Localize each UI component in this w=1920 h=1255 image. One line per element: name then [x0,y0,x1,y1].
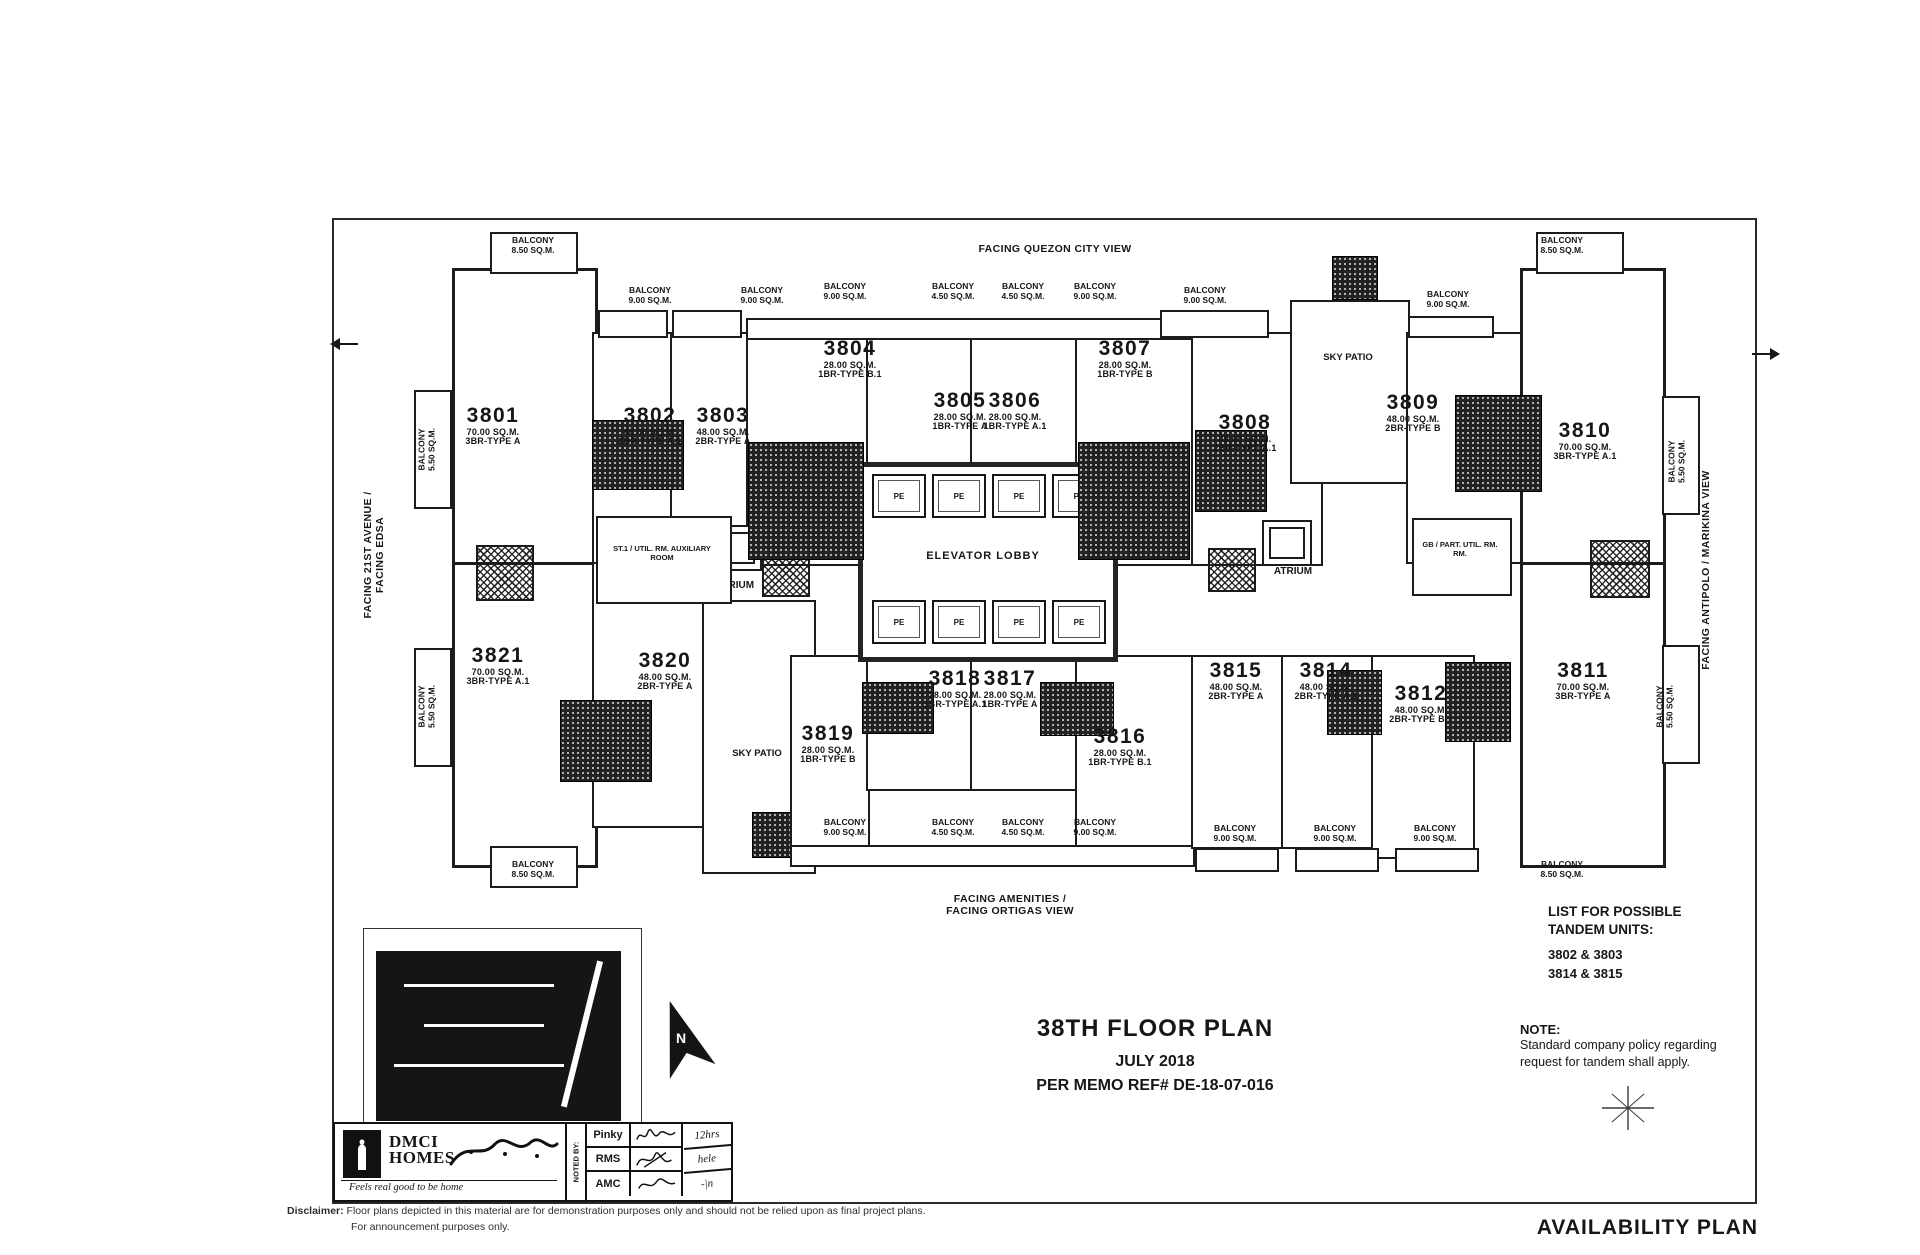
facing-label-right: FACING ANTIPOLO / MARIKINA VIEW [1700,405,1712,735]
elevator-car: PE [932,474,986,518]
approver-signature [631,1124,683,1148]
facing-bottom-line2: FACING ORTIGAS VIEW [946,905,1074,917]
plan-title-block: 38TH FLOOR PLAN JULY 2018 PER MEMO REF# … [955,1015,1355,1095]
elevator-car: PE [992,600,1046,644]
unit-3812: 381248.00 SQ.M.2BR-TYPE B.1 [1371,683,1471,725]
note-line2: request for tandem shall apply. [1520,1055,1690,1069]
plan-date: JULY 2018 [955,1053,1355,1071]
balcony-label: BALCONY4.50 SQ.M. [913,282,993,301]
unit-type: 1BR-TYPE B.1 [800,370,900,380]
survey-cross-icon [1598,1082,1658,1134]
approver-signature [631,1148,683,1172]
balcony-label: BALCONY8.50 SQ.M. [1522,860,1602,879]
unit-type: 2BR-TYPE A [1186,692,1286,702]
tandem-pair: 3802 & 3803 [1548,947,1622,962]
unit-3801: 380170.00 SQ.M.3BR-TYPE A [443,405,543,447]
note-line1: Standard company policy regarding [1520,1038,1717,1052]
balcony-word: BALCONY [416,429,426,471]
fire-exit-stair-right [1590,540,1650,598]
unit-3810: 381070.00 SQ.M.3BR-TYPE A.1 [1535,420,1635,462]
balcony-structure [1160,310,1269,338]
unit-type: 1BR-TYPE B [1075,370,1175,380]
balcony-label: BALCONY9.00 SQ.M. [805,282,885,301]
unit-3808: 380848.00 SQ.M.2BR-TYPE A.1 [1195,412,1295,454]
sky-patio-label-top: SKY PATIO [1292,352,1404,363]
unit-number: 3812 [1371,683,1471,706]
dmci-logo-block: DMCI HOMES Feels real good to be home [333,1122,567,1202]
balcony-structure [672,310,742,338]
balcony-label: BALCONY9.00 SQ.M. [722,286,802,305]
note-heading: NOTE: [1520,1022,1760,1037]
balcony-word: BALCONY [1427,289,1469,299]
balcony-area: 9.00 SQ.M. [741,295,784,305]
unit-3803: 380348.00 SQ.M.2BR-TYPE A [673,405,773,447]
balcony-label: BALCONY5.50 SQ.M. [1667,422,1686,502]
unit-3807: 380728.00 SQ.M.1BR-TYPE B [1075,338,1175,380]
balcony-label: BALCONY8.50 SQ.M. [1522,236,1602,255]
balcony-word: BALCONY [629,285,671,295]
unit-type: 2BR-TYPE A [673,437,773,447]
facing-left-line2: FACING EDSA [374,517,386,593]
approver-name: AMC [587,1172,631,1196]
north-arrow-icon: N [648,1000,720,1090]
unit-number: 3819 [778,723,878,746]
unit-3821: 382170.00 SQ.M.3BR-TYPE A.1 [448,645,548,687]
balcony-label: BALCONY5.50 SQ.M. [417,410,436,490]
balcony-structure [1195,848,1279,872]
unit-number: 3807 [1075,338,1175,361]
balcony-area: 9.00 SQ.M. [1074,291,1117,301]
balcony-structure [1395,848,1479,872]
balcony-word: BALCONY [741,285,783,295]
elevator-car: PE [872,600,926,644]
balcony-area: 4.50 SQ.M. [1002,291,1045,301]
unit-3820: 382048.00 SQ.M.2BR-TYPE A [615,650,715,692]
tandem-heading-line2: TANDEM UNITS: [1548,922,1654,937]
balcony-structure [1408,316,1494,338]
elevator-car: PE [992,474,1046,518]
matchline-arrow-left-icon [330,338,358,350]
logo-divider [341,1180,557,1181]
unit-3804: 380428.00 SQ.M.1BR-TYPE B.1 [800,338,900,380]
balcony-area: 4.50 SQ.M. [1002,827,1045,837]
unit-3811: 381170.00 SQ.M.3BR-TYPE A [1533,660,1633,702]
unit-number: 3810 [1535,420,1635,443]
balcony-word: BALCONY [824,817,866,827]
balcony-label: BALCONY9.00 SQ.M. [1165,286,1245,305]
balcony-area: 5.50 SQ.M. [1676,440,1686,483]
balcony-area: 8.50 SQ.M. [512,869,555,879]
approver-signature [631,1172,683,1196]
availability-plan-label: AVAILABILITY PLAN [1518,1216,1758,1240]
dmci-logo-icon [343,1130,381,1178]
unit-3806: 380628.00 SQ.M.1BR-TYPE A.1 [965,390,1065,432]
unit-number: 3820 [615,650,715,673]
matchline-arrow-right-icon [1752,348,1780,360]
unit-3816: 381628.00 SQ.M.1BR-TYPE B.1 [1070,726,1170,768]
key-plan-detail [424,1024,544,1027]
unit-type: 3BR-TYPE A.1 [448,677,548,687]
balcony-label: BALCONY4.50 SQ.M. [983,818,1063,837]
disclaimer-line1: Floor plans depicted in this material ar… [347,1205,926,1217]
unit-type: 2BR-TYPE B [1363,424,1463,434]
balcony-structure [790,845,1195,867]
key-plan-detail [404,984,554,987]
unit-type: 2BR-TYPE B.1 [1371,715,1471,725]
atrium-label-right: ATRIUM [1258,566,1328,578]
balcony-word: BALCONY [932,281,974,291]
noted-by-header: NOTED BY: [567,1124,587,1200]
elevator-car: PE [872,474,926,518]
key-plan-thumbnail [363,928,642,1138]
balcony-area: 5.50 SQ.M. [426,685,436,728]
disclaimer: Disclaimer: Floor plans depicted in this… [287,1204,1117,1236]
balcony-word: BALCONY [1314,823,1356,833]
balcony-area: 9.00 SQ.M. [1427,299,1470,309]
balcony-word: BALCONY [1414,823,1456,833]
elevator-car-label: PE [894,492,905,501]
sky-patio-label-bottom: SKY PATIO [706,748,808,759]
brand-tagline: Feels real good to be home [349,1182,463,1193]
balcony-structure [598,310,668,338]
elevator-car: PE [932,600,986,644]
fixtures-cluster [748,442,864,560]
balcony-area: 9.00 SQ.M. [1184,295,1227,305]
balcony-label: BALCONY9.00 SQ.M. [610,286,690,305]
balcony-structure [1295,848,1379,872]
balcony-area: 4.50 SQ.M. [932,291,975,301]
north-letter: N [676,1030,686,1046]
unit-number: 3821 [448,645,548,668]
unit-3809: 380948.00 SQ.M.2BR-TYPE B [1363,392,1463,434]
balcony-area: 5.50 SQ.M. [1664,685,1674,728]
facing-label-left: FACING 21ST AVENUE / FACING EDSA [362,425,386,685]
elevator-car-label: PE [1014,618,1025,627]
elevator-car-label: PE [954,618,965,627]
approver-name: Pinky [587,1124,631,1148]
balcony-word: BALCONY [416,686,426,728]
balcony-area: 5.50 SQ.M. [426,428,436,471]
disclaimer-label: Disclaimer: [287,1205,344,1217]
atrium-skylight-right [1262,520,1312,566]
facing-label-bottom: FACING AMENITIES / FACING ORTIGAS VIEW [910,893,1110,918]
unit-number: 3804 [800,338,900,361]
elevator-car-label: PE [894,618,905,627]
tandem-units-list: LIST FOR POSSIBLETANDEM UNITS: 3802 & 38… [1548,903,1768,984]
unit-number: 3809 [1363,392,1463,415]
balcony-label: BALCONY9.00 SQ.M. [1408,290,1488,309]
balcony-label: BALCONY9.00 SQ.M. [1195,824,1275,843]
facing-label-top: FACING QUEZON CITY VIEW [945,243,1165,255]
balcony-label: BALCONY8.50 SQ.M. [493,860,573,879]
balcony-word: BALCONY [1541,235,1583,245]
balcony-label: BALCONY9.00 SQ.M. [1055,282,1135,301]
balcony-word: BALCONY [932,817,974,827]
balcony-area: 4.50 SQ.M. [932,827,975,837]
balcony-label: BALCONY9.00 SQ.M. [1295,824,1375,843]
balcony-label: BALCONY8.50 SQ.M. [493,236,573,255]
noted-by-grid: Pinky 12hrs RMS hele AMC -|n [587,1124,731,1200]
facing-left-line1: FACING 21ST AVENUE / [362,491,374,618]
unit-type: 2BR-TYPE A.1 [1276,692,1376,702]
balcony-label: BALCONY4.50 SQ.M. [913,818,993,837]
unit-3814: 381448.00 SQ.M.2BR-TYPE A.1 [1276,660,1376,702]
unit-number: 3815 [1186,660,1286,683]
unit-type: 2BR-TYPE A [615,682,715,692]
balcony-word: BALCONY [1654,686,1664,728]
unit-type: 3BR-TYPE A [1533,692,1633,702]
noted-by-label: NOTED BY: [572,1142,581,1183]
shaft-hatch [1208,548,1256,592]
unit-number: 3801 [443,405,543,428]
plan-title: 38TH FLOOR PLAN [955,1015,1355,1043]
elevator-car: PE [1052,600,1106,644]
balcony-area: 8.50 SQ.M. [1541,869,1584,879]
elevator-car-label: PE [1074,618,1085,627]
balcony-label: BALCONY9.00 SQ.M. [1395,824,1475,843]
elevator-car-label: PE [1014,492,1025,501]
unit-number: 3811 [1533,660,1633,683]
unit-type: 1BR-TYPE A [960,700,1060,710]
elevator-lobby-label: ELEVATOR LOBBY [858,550,1108,563]
noted-by-table: NOTED BY: Pinky 12hrs RMS hele AMC -|n [565,1122,733,1202]
approver-name: RMS [587,1148,631,1172]
balcony-word: BALCONY [1214,823,1256,833]
brand-name: DMCI HOMES [389,1134,455,1166]
fixtures-cluster [1455,395,1542,492]
balcony-word: BALCONY [1541,859,1583,869]
homes-doodle-icon [447,1130,559,1172]
note-block: NOTE: Standard company policy regardingr… [1520,1022,1760,1071]
unit-number: 3808 [1195,412,1295,435]
balcony-word: BALCONY [824,281,866,291]
unit-number: 3806 [965,390,1065,413]
unit-number: 3816 [1070,726,1170,749]
unit-type: 3BR-TYPE A [443,437,543,447]
balcony-label: BALCONY4.50 SQ.M. [983,282,1063,301]
tandem-heading-line1: LIST FOR POSSIBLE [1548,904,1682,919]
unit-number: 3817 [960,668,1060,691]
floor-plan-sheet: FACING QUEZON CITY VIEW FACING 21ST AVEN… [0,0,1920,1255]
balcony-label: BALCONY5.50 SQ.M. [1655,667,1674,747]
fire-exit-stair-left [476,545,534,601]
unit-number: 3814 [1276,660,1376,683]
balcony-word: BALCONY [1666,441,1676,483]
aux-room-right-label: GB / PART. UTIL. RM. RM. [1416,540,1504,558]
balcony-word: BALCONY [1184,285,1226,295]
balcony-label: BALCONY5.50 SQ.M. [417,667,436,747]
unit-type: 2BR-TYPE A.1 [1195,444,1295,454]
plan-memo-ref: PER MEMO REF# DE-18-07-016 [955,1077,1355,1095]
approver-remark: -|n [682,1170,732,1198]
brand-line2: HOMES [389,1150,455,1166]
unit-type: 1BR-TYPE A.1 [965,422,1065,432]
balcony-word: BALCONY [512,859,554,869]
balcony-area: 9.00 SQ.M. [1214,833,1257,843]
balcony-word: BALCONY [1074,281,1116,291]
balcony-word: BALCONY [1002,281,1044,291]
balcony-area: 8.50 SQ.M. [512,245,555,255]
balcony-area: 9.00 SQ.M. [824,827,867,837]
balcony-area: 9.00 SQ.M. [1414,833,1457,843]
unit-3817: 381728.00 SQ.M.1BR-TYPE A [960,668,1060,710]
disclaimer-line2: For announcement purposes only. [351,1221,510,1233]
unit-type: 3BR-TYPE A.1 [1535,452,1635,462]
elevator-car-label: PE [954,492,965,501]
balcony-area: 9.00 SQ.M. [1314,833,1357,843]
unit-number: 3803 [673,405,773,428]
fixtures-cluster [560,700,652,782]
balcony-word: BALCONY [512,235,554,245]
key-plan-detail [394,1064,564,1067]
sky-patio-planter [1332,256,1378,300]
unit-3815: 381548.00 SQ.M.2BR-TYPE A [1186,660,1286,702]
fixtures-cluster [1078,442,1190,560]
balcony-area: 8.50 SQ.M. [1541,245,1584,255]
balcony-area: 9.00 SQ.M. [1074,827,1117,837]
balcony-area: 9.00 SQ.M. [824,291,867,301]
balcony-label: BALCONY9.00 SQ.M. [805,818,885,837]
aux-room-left-label: ST.1 / UTIL. RM. AUXILIARY ROOM [602,544,722,562]
balcony-word: BALCONY [1074,817,1116,827]
facing-bottom-line1: FACING AMENITIES / [954,893,1066,905]
room-outline-3811 [1520,562,1666,868]
unit-type: 1BR-TYPE B.1 [1070,758,1170,768]
balcony-word: BALCONY [1002,817,1044,827]
balcony-area: 9.00 SQ.M. [629,295,672,305]
tandem-pair: 3814 & 3815 [1548,966,1622,981]
balcony-label: BALCONY9.00 SQ.M. [1055,818,1135,837]
